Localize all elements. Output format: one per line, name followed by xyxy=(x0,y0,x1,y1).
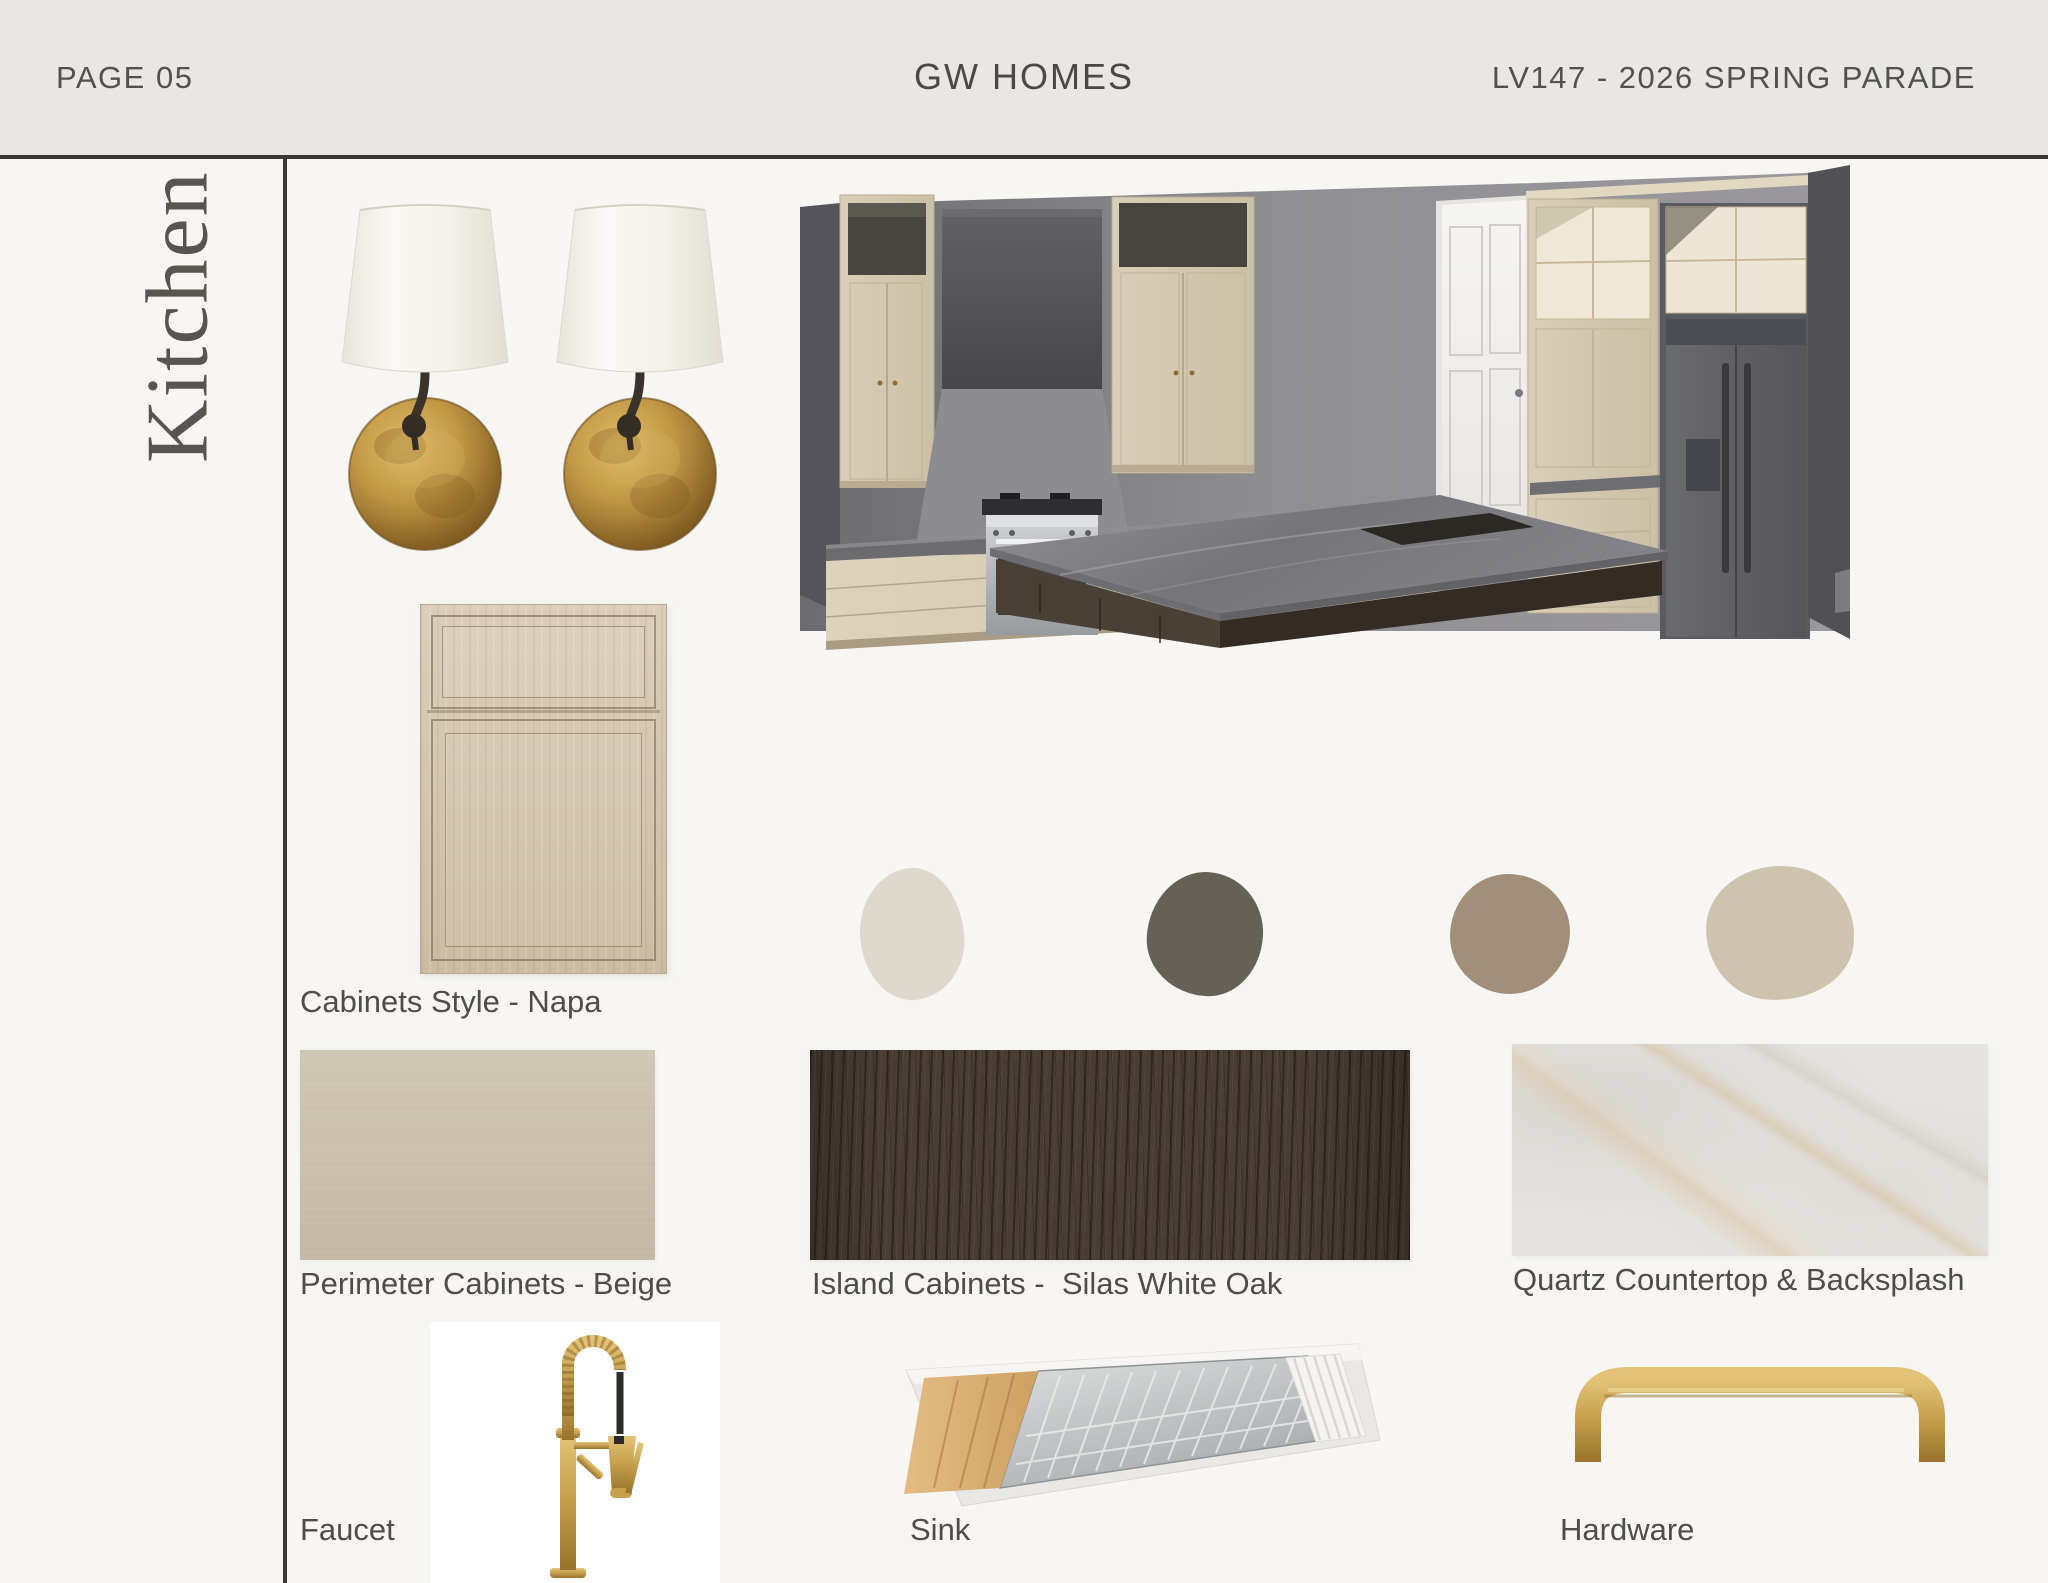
section-title: Kitchen xyxy=(118,152,238,482)
cabinet-sample-door xyxy=(431,719,656,961)
faucet-image-card xyxy=(430,1322,720,1583)
sconce-image-left xyxy=(330,196,520,576)
cabinet-door-sample xyxy=(420,604,667,974)
faucet-label: Faucet xyxy=(300,1512,395,1548)
perimeter-cabinet-sample xyxy=(300,1050,655,1260)
hardware-image xyxy=(1560,1360,1960,1470)
sink-label: Sink xyxy=(910,1512,970,1548)
cabinet-sample-drawer xyxy=(431,615,656,709)
sink-image xyxy=(888,1336,1380,1514)
cabinet-style-label: Cabinets Style - Napa xyxy=(300,984,602,1020)
perimeter-cabinet-label: Perimeter Cabinets - Beige xyxy=(300,1266,672,1302)
render-range-hood xyxy=(916,209,1130,545)
color-swatch-charcoal xyxy=(1144,869,1266,999)
faucet-image xyxy=(490,1324,660,1582)
kitchen-3d-render xyxy=(800,143,1850,653)
island-cabinet-label: Island Cabinets - Silas White Oak xyxy=(812,1266,1282,1302)
color-swatch-beige xyxy=(1704,863,1857,1002)
moodboard-page: PAGE 05 GW HOMES LV147 - 2026 SPRING PAR… xyxy=(0,0,2048,1583)
render-left-uppers xyxy=(840,195,934,488)
project-code: LV147 - 2026 SPRING PARADE xyxy=(1492,60,1976,96)
quartz-sample xyxy=(1512,1044,1988,1256)
color-swatch-taupe xyxy=(1450,874,1570,994)
island-cabinet-sample xyxy=(810,1050,1410,1260)
render-fridge xyxy=(1660,203,1810,639)
brand-title: GW HOMES xyxy=(914,56,1134,98)
quartz-label: Quartz Countertop & Backsplash xyxy=(1513,1262,1964,1298)
sconce-image-right xyxy=(545,196,735,576)
page-number: PAGE 05 xyxy=(56,60,193,96)
render-door xyxy=(1436,195,1532,541)
hardware-label: Hardware xyxy=(1560,1512,1694,1548)
sidebar-divider xyxy=(283,155,287,1583)
color-swatch-cream xyxy=(856,865,969,1004)
render-middle-uppers xyxy=(1112,197,1254,473)
page-header: PAGE 05 GW HOMES LV147 - 2026 SPRING PAR… xyxy=(0,0,2048,159)
